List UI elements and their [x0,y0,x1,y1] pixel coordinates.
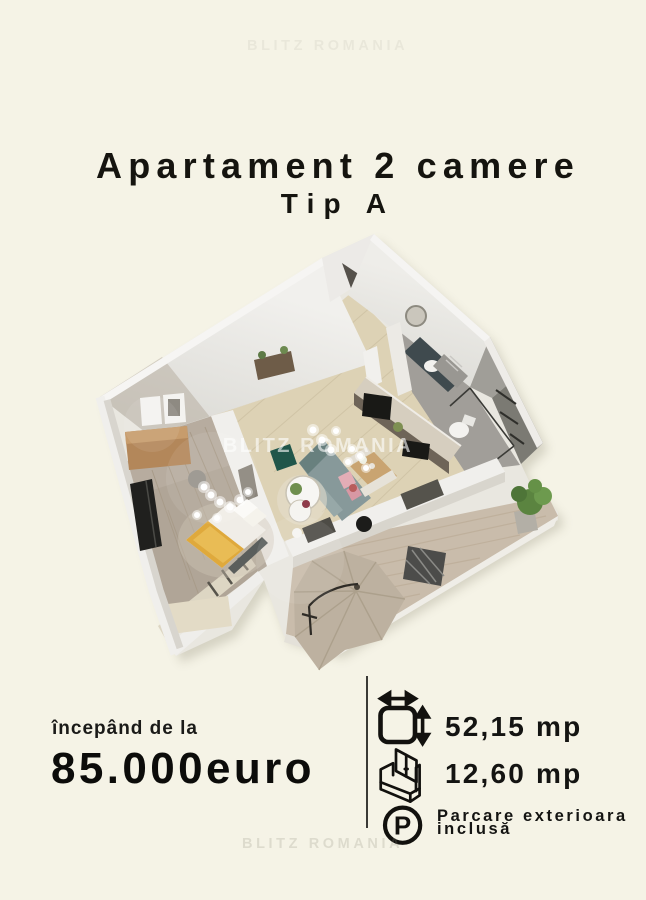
svg-text:BLITZ ROMANIA: BLITZ ROMANIA [223,435,413,457]
